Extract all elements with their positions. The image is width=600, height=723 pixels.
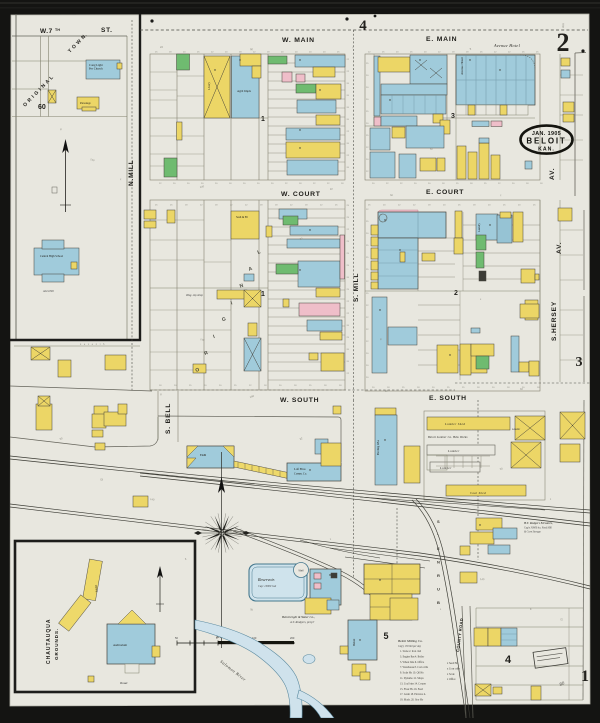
svg-text:15. Flour Ho 16. Feed: 15. Flour Ho 16. Feed [400,688,424,691]
svg-text:Beloit Lumber Co. Hdw Work: Beloit Lumber Co. Hdw Works [428,436,468,439]
svg-text:Auditorium: Auditorium [113,643,128,647]
svg-text:Lumber: Lumber [439,466,452,470]
svg-text:& Corn Storage: & Corn Storage [524,531,542,534]
svg-text:Avenue Hotel: Avenue Hotel [460,57,464,75]
svg-text:Comm. Co.: Comm. Co. [294,473,307,476]
svg-text:S. MILL: S. MILL [353,273,360,302]
svg-text:9. Scale Ho 10. Oil Ho: 9. Scale Ho 10. Oil Ho [400,672,424,675]
svg-text:Central High School: Central High School [40,255,63,258]
svg-text:Pre Church: Pre Church [89,67,103,71]
svg-text:140: 140 [480,577,485,581]
svg-text:W. COURT: W. COURT [281,191,321,198]
svg-text:Cap'y 30000 bu. Feed Mill: Cap'y 30000 bu. Feed Mill [524,527,552,530]
svg-text:Lumber: Lumber [447,449,460,453]
svg-text:Livery: Livery [207,82,211,90]
svg-text:Leader: Leader [512,427,520,431]
svg-text:W. SOUTH: W. SOUTH [280,397,319,404]
svg-text:B: B [437,600,440,605]
svg-text:200: 200 [290,636,295,640]
svg-text:x Corn cribs: x Corn cribs [447,667,460,670]
svg-text:CHAUTAUQUA: CHAUTAUQUA [46,619,52,664]
svg-text:1: 1 [261,291,265,298]
svg-text:x Scale: x Scale [447,673,455,676]
svg-text:1: 1 [261,116,265,123]
svg-text:BELOIT: BELOIT [526,137,566,146]
svg-text:Avenue Hotel: Avenue Hotel [493,43,521,48]
svg-text:S: S [437,519,440,524]
svg-text:Laundry: Laundry [478,223,481,232]
svg-text:Road.: Road. [120,681,128,685]
svg-text:': ' [437,533,438,538]
svg-text:N.MILL: N.MILL [128,160,135,186]
svg-text:Parsonage: Parsonage [80,102,92,105]
svg-text:4: 4 [359,18,367,34]
svg-text:19. Mach. 20. Stor Ho: 19. Mach. 20. Stor Ho [400,699,424,702]
svg-text:Loft Bros: Loft Bros [294,467,306,471]
svg-text:N: N [437,560,440,565]
svg-text:S. BELL: S. BELL [165,403,172,434]
svg-text:Lumber Shed: Lumber Shed [444,422,465,426]
svg-text:E. MAIN: E. MAIN [426,36,457,43]
svg-text:7. Warehouse 8. Corn cribs: 7. Warehouse 8. Corn cribs [400,666,428,669]
svg-text:Cap: 10000 Gal: Cap: 10000 Gal [258,585,276,588]
svg-text:Cap'y 150 bbl per day: Cap'y 150 bbl per day [398,645,422,648]
svg-text:Bottling Wks: Bottling Wks [377,440,380,455]
svg-text:AV.: AV. [549,168,556,180]
svg-text:Sash & Bl: Sash & Bl [236,216,248,219]
svg-text:U: U [437,587,440,592]
svg-text:x Seed Ho: x Seed Ho [447,662,459,665]
svg-text:R: R [437,573,440,578]
svg-text:2: 2 [557,28,570,57]
svg-text:x Office: x Office [447,678,456,681]
svg-text:s e v e n t h: s e v e n t h [80,343,105,346]
svg-text:Well: Well [299,569,304,573]
svg-text:Beloit Milling Co.: Beloit Milling Co. [398,639,423,643]
svg-text:1: 1 [581,668,589,685]
svg-text:W.7: W.7 [40,28,53,35]
svg-text:3. Engine Rm 4. Boiler: 3. Engine Rm 4. Boiler [400,655,424,658]
svg-text:ST.: ST. [101,27,113,34]
svg-text:S.HERSEY: S.HERSEY [551,301,558,341]
svg-text:GROUNDS.: GROUNDS. [54,628,59,660]
svg-text:E. SOUTH: E. SOUTH [429,395,467,402]
svg-text:60: 60 [38,104,46,111]
svg-text:11. Dynamo 12. Shops: 11. Dynamo 12. Shops [400,677,424,680]
svg-text:5: 5 [383,631,388,641]
svg-text:TH: TH [55,28,60,32]
svg-text:AV.: AV. [556,242,563,254]
svg-text:Add 1890: Add 1890 [42,290,54,293]
svg-text:4: 4 [505,654,512,666]
svg-text:Wag. rep shop: Wag. rep shop [186,293,203,297]
svg-text:Agril Impls: Agril Impls [237,89,252,93]
svg-text:KAN.: KAN. [538,147,555,153]
svg-text:1. Stone 2. Iron clad: 1. Stone 2. Iron clad [400,650,422,653]
svg-text:3: 3 [451,113,455,120]
svg-text:13. Coal bins 14. Cooper: 13. Coal bins 14. Cooper [400,682,426,685]
svg-text:5. Wheat bins 6. Office: 5. Wheat bins 6. Office [400,661,425,664]
svg-text:W. MAIN: W. MAIN [282,37,315,44]
svg-text:E: E [437,546,440,551]
svg-text:Beloit: Beloit [352,639,356,646]
svg-text:3: 3 [576,355,583,370]
svg-text:Coal Shed: Coal Shed [470,491,486,495]
svg-text:E. COURT: E. COURT [426,189,464,196]
svg-text:Reservoir.: Reservoir. [257,577,275,582]
svg-text:17. Grain 18. Elevator A: 17. Grain 18. Elevator A [400,693,426,696]
